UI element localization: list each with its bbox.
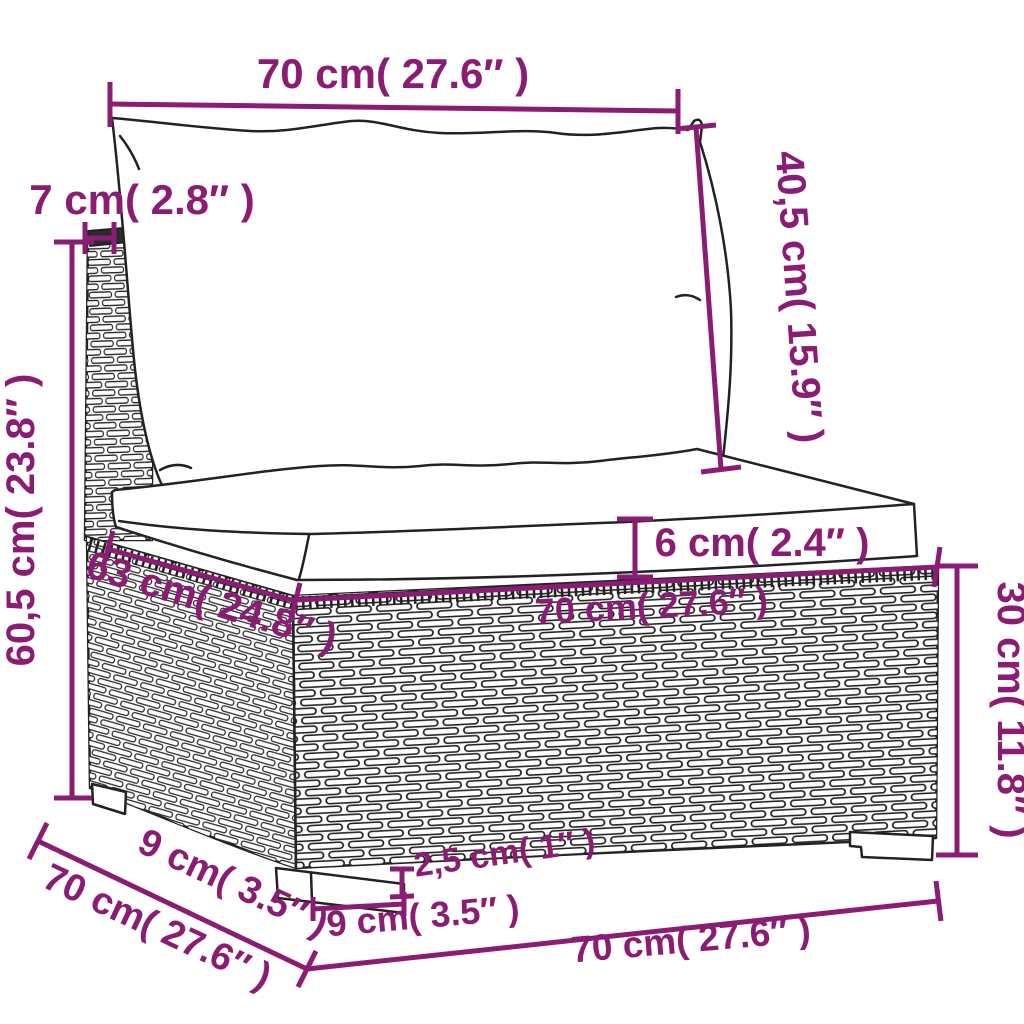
- label-frame-top-depth: 7 cm( 2.8″ ): [29, 176, 255, 223]
- dim-total-depth-tick-left: [29, 823, 47, 859]
- label-base-height: 30 cm( 11.8″ ): [989, 581, 1024, 838]
- dim-back-height-tick-top: [676, 125, 716, 129]
- label-back-width: 70 cm( 27.6″ ): [257, 50, 529, 97]
- label-cushion-thickness: 6 cm( 2.4″ ): [655, 521, 870, 565]
- label-back-cushion-height: 40,5 cm( 15.9″ ): [767, 150, 831, 445]
- label-total-height: 60,5 cm( 23.8″ ): [0, 374, 43, 667]
- dim-total-width-tick-right: [936, 881, 941, 921]
- back-cushion: [112, 118, 731, 497]
- dimension-diagram: 70 cm( 27.6″ ) 40,5 cm( 15.9″ ) 7 cm( 2.…: [0, 0, 1024, 1024]
- dim-back-width-line: [110, 104, 678, 111]
- label-total-width: 70 cm( 27.6″ ): [570, 909, 813, 971]
- dimension-diagram-page: 70 cm( 27.6″ ) 40,5 cm( 15.9″ ) 7 cm( 2.…: [0, 0, 1024, 1024]
- leg-front-right: [850, 832, 933, 860]
